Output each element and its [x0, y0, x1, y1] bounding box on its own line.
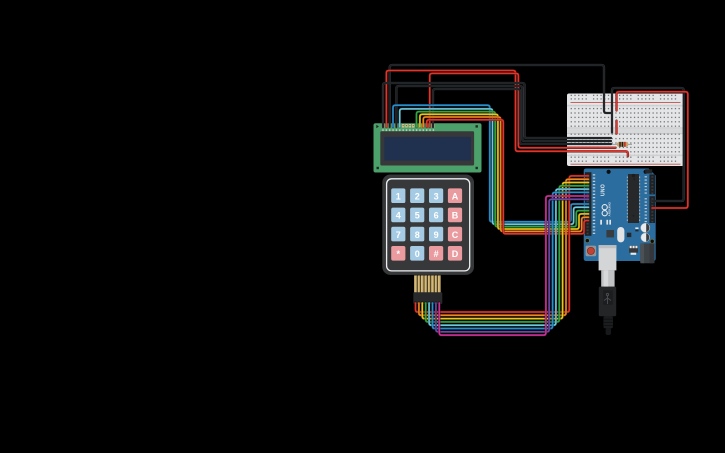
svg-text:*: *: [397, 249, 401, 259]
svg-text:3: 3: [434, 191, 439, 201]
svg-text:6: 6: [434, 211, 439, 221]
svg-text:4: 4: [396, 211, 401, 221]
svg-text:D: D: [452, 249, 459, 259]
svg-text:B: B: [452, 211, 459, 221]
svg-text:0: 0: [415, 249, 420, 259]
svg-text:UNO: UNO: [601, 184, 607, 196]
svg-text:A: A: [452, 191, 459, 201]
svg-text:7: 7: [396, 230, 401, 240]
svg-text:2: 2: [415, 191, 420, 201]
svg-text:5: 5: [415, 211, 420, 221]
svg-text:ARDUINO: ARDUINO: [608, 201, 612, 216]
svg-text:#: #: [434, 249, 439, 259]
svg-text:C: C: [452, 230, 459, 240]
svg-text:9: 9: [434, 230, 439, 240]
svg-text:8: 8: [415, 230, 420, 240]
svg-text:1: 1: [396, 191, 401, 201]
